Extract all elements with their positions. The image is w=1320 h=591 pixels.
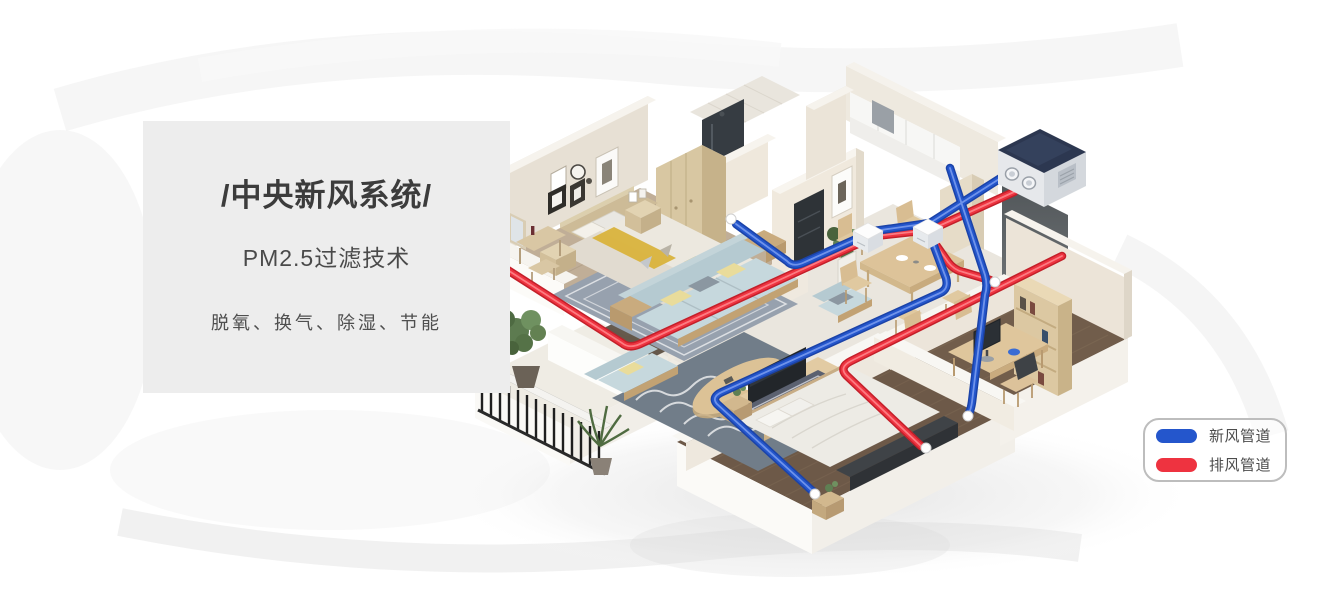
exhaust-air-duct-swatch — [1156, 458, 1197, 472]
subtitle: PM2.5过滤技术 — [243, 239, 410, 273]
intro-panel: /中央新风系统/ PM2.5过滤技术 脱氧、换气、除湿、节能 — [143, 121, 510, 393]
exhaust-air-duct-label: 排风管道 — [1209, 454, 1271, 475]
legend-item-fresh-air: 新风管道 — [1156, 425, 1274, 446]
legend-item-exhaust-air: 排风管道 — [1156, 454, 1274, 475]
fresh-air-duct-swatch — [1156, 429, 1197, 443]
pipe-legend: 新风管道 排风管道 — [1143, 418, 1287, 482]
tagline: 脱氧、换气、除湿、节能 — [211, 309, 442, 335]
hero-banner: /中央新风系统/ PM2.5过滤技术 脱氧、换气、除湿、节能 新风管道 排风管道 — [0, 0, 1320, 591]
page-title: /中央新风系统/ — [221, 179, 432, 213]
fresh-air-duct-label: 新风管道 — [1209, 425, 1271, 446]
